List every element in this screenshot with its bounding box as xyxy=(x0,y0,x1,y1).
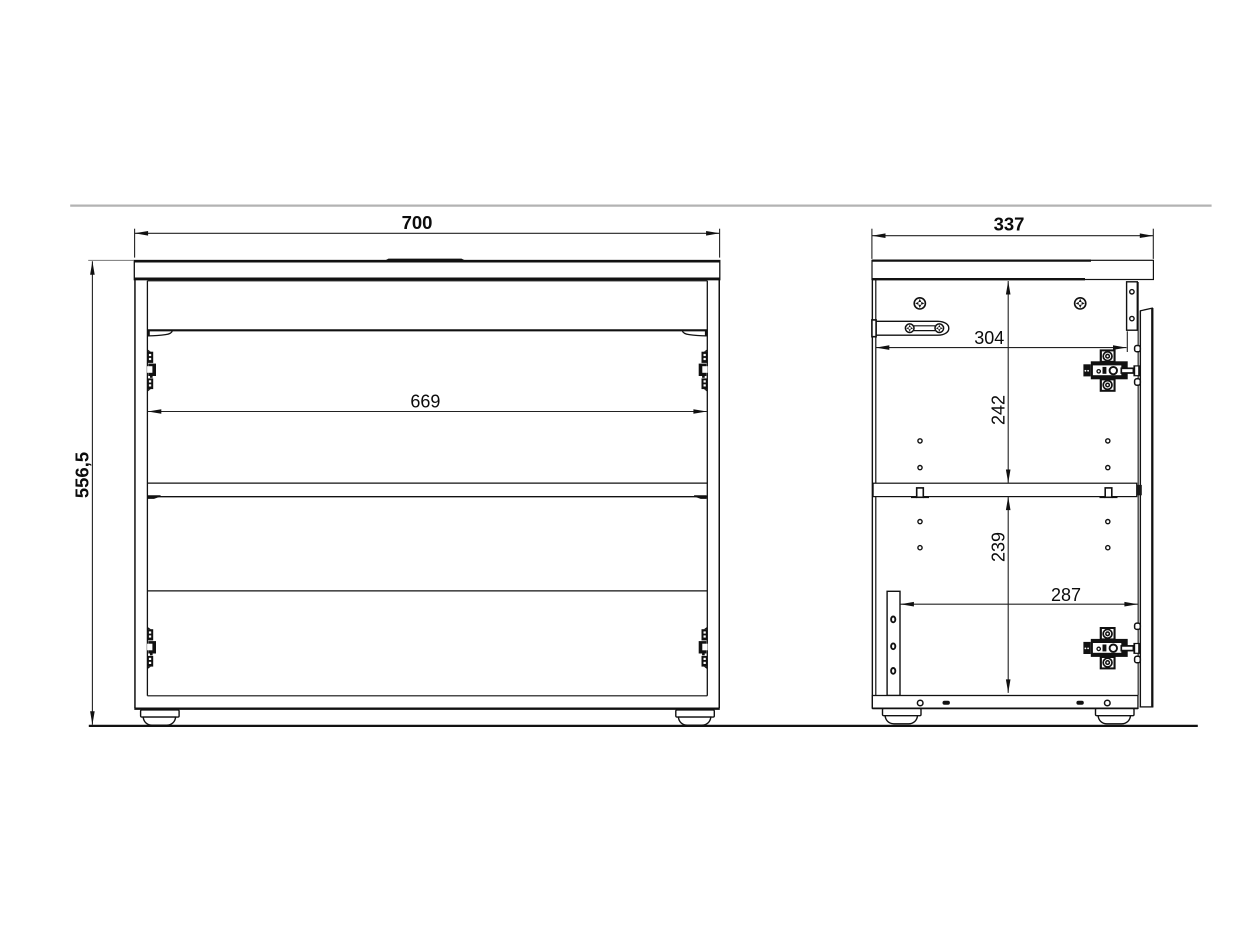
svg-text:242: 242 xyxy=(989,395,1009,425)
svg-text:337: 337 xyxy=(994,214,1025,235)
svg-text:239: 239 xyxy=(989,532,1009,562)
svg-text:556,5: 556,5 xyxy=(72,452,93,498)
svg-text:304: 304 xyxy=(974,328,1004,348)
svg-text:287: 287 xyxy=(1051,585,1081,605)
svg-text:669: 669 xyxy=(410,392,440,412)
svg-text:700: 700 xyxy=(402,212,433,233)
